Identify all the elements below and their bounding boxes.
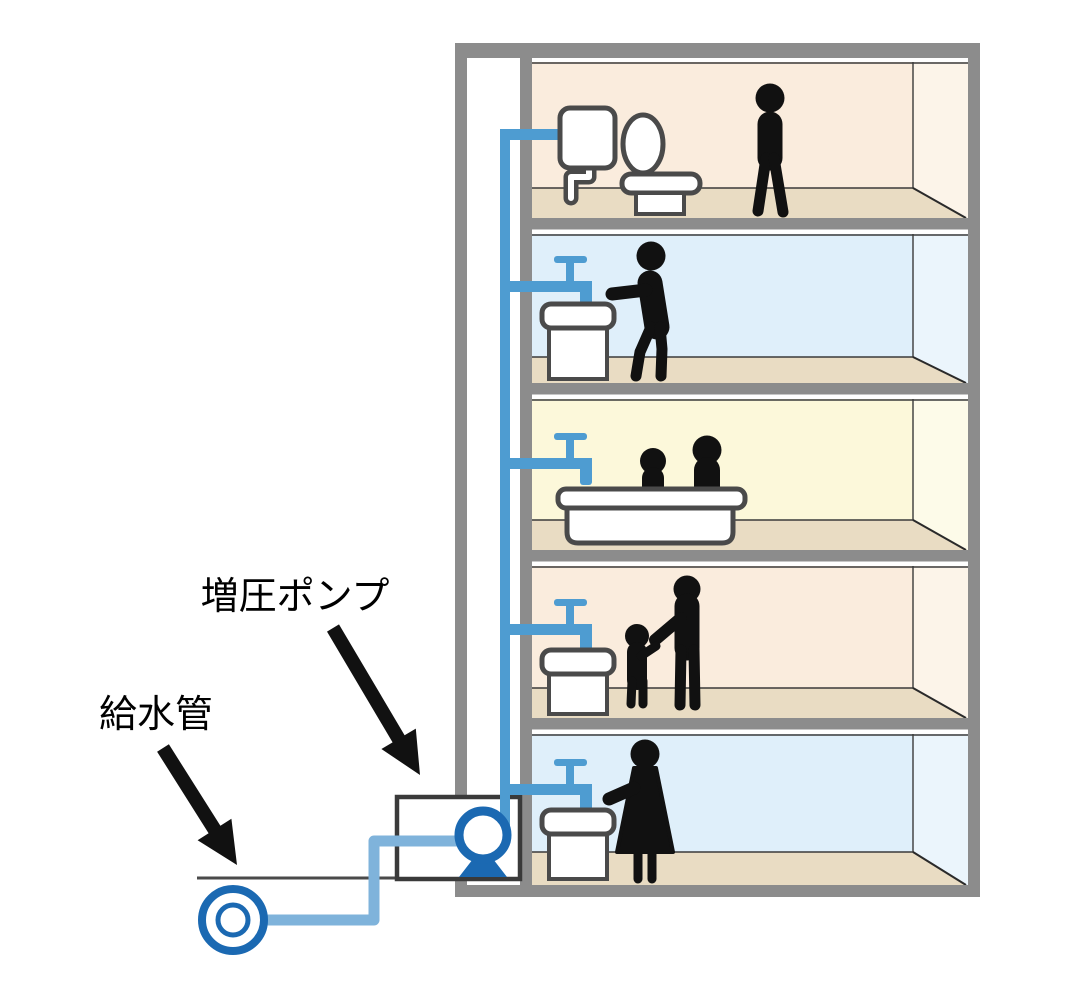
supply-pipe-arrow (157, 744, 237, 865)
bathtub-icon (558, 489, 745, 543)
left-outer-wall (455, 43, 467, 897)
floor-slab (520, 383, 980, 395)
roof-slab (455, 43, 980, 58)
washbasin-icon (542, 650, 614, 714)
washbasin-icon (542, 810, 614, 879)
building-water-supply-diagram: 増圧ポンプ 給水管 (0, 0, 1088, 1000)
right-outer-wall (968, 43, 980, 897)
washbasin-icon (542, 304, 614, 379)
floor-slab (520, 550, 980, 562)
diagram-canvas: 増圧ポンプ 給水管 (0, 0, 1088, 1000)
booster-pump-arrow (327, 624, 420, 775)
toilet-branch-pipe (500, 129, 566, 140)
floor-slab (520, 718, 980, 730)
floor-slab (520, 218, 980, 230)
water-main-icon (202, 889, 264, 951)
bottom-slab (455, 885, 980, 897)
booster-pump-label: 増圧ポンプ (201, 576, 390, 618)
supply-pipe-label: 給水管 (99, 694, 213, 736)
